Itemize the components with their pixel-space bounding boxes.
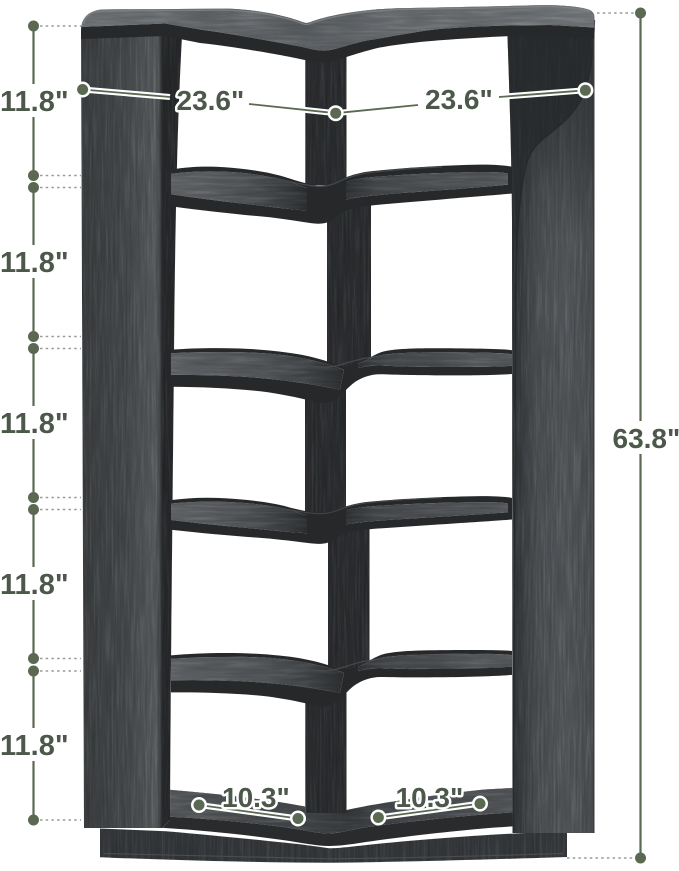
svg-text:10.3": 10.3" bbox=[222, 782, 290, 813]
svg-text:11.8": 11.8" bbox=[0, 730, 69, 762]
svg-text:63.8": 63.8" bbox=[613, 423, 679, 454]
svg-text:11.8": 11.8" bbox=[0, 408, 69, 440]
svg-text:23.6": 23.6" bbox=[425, 84, 493, 115]
svg-text:10.3": 10.3" bbox=[396, 782, 464, 813]
svg-text:11.8": 11.8" bbox=[0, 247, 69, 279]
svg-text:11.8": 11.8" bbox=[0, 86, 69, 118]
svg-text:23.6": 23.6" bbox=[177, 85, 245, 116]
svg-text:11.8": 11.8" bbox=[0, 569, 69, 601]
